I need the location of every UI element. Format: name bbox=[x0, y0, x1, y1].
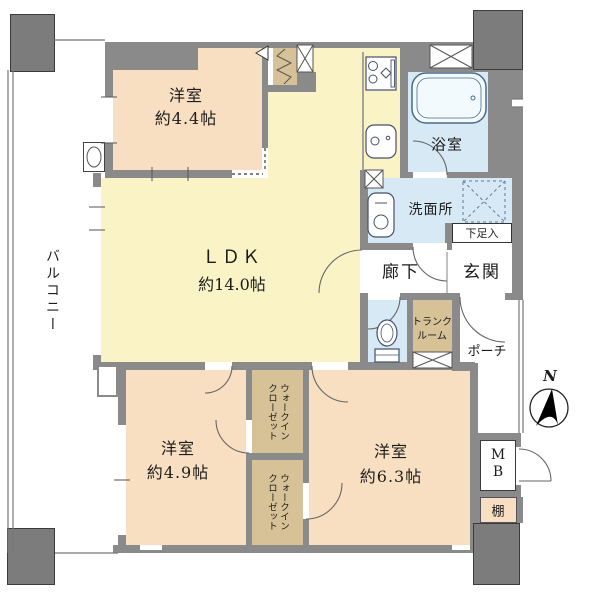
label-shelf: 棚 bbox=[491, 501, 504, 520]
toilet-icon bbox=[375, 320, 399, 362]
window-ticks bbox=[89, 97, 188, 480]
label-ldk: ＬＤＫ約14.0帖 bbox=[198, 244, 266, 298]
balcony-sink-bowl bbox=[87, 147, 101, 167]
label-compass-north: N bbox=[543, 367, 557, 385]
label-balcony: バルコニー bbox=[42, 249, 62, 334]
label-shoe-cabinet: 下足入 bbox=[466, 225, 499, 241]
bathtub-icon bbox=[412, 73, 486, 123]
compass-icon bbox=[530, 389, 568, 427]
dashed-opening bbox=[232, 148, 265, 174]
closet-zigzag bbox=[277, 49, 291, 84]
label-porch: ポーチ bbox=[467, 341, 506, 360]
kitchen-sink-icon bbox=[366, 125, 396, 158]
porch-edge-lines bbox=[512, 99, 523, 433]
plan-linework bbox=[0, 0, 600, 600]
label-wic-upper: ウォークインクローゼット bbox=[265, 384, 289, 441]
laundry-space-mark bbox=[463, 181, 505, 222]
label-trunk-room: トランクルーム bbox=[412, 316, 452, 344]
label-washroom: 洗面所 bbox=[409, 199, 454, 219]
balcony-edge-lines bbox=[8, 40, 118, 553]
floor-plan: 洋室約4.4帖 ＬＤＫ約14.0帖 浴室 洗面所 下足入 玄関 廊下 トランクル… bbox=[0, 0, 600, 600]
door-swing-triangle bbox=[256, 46, 268, 60]
label-bedroom-44: 洋室約4.4帖 bbox=[155, 84, 217, 130]
label-bedroom-63: 洋室約6.3帖 bbox=[360, 439, 422, 489]
label-hallway: 廊下 bbox=[382, 258, 420, 283]
label-meter-box: MB bbox=[491, 447, 505, 481]
label-bath: 浴室 bbox=[431, 134, 463, 155]
washbasin-icon bbox=[368, 193, 394, 237]
label-entrance: 玄関 bbox=[463, 258, 501, 283]
stove-icon bbox=[366, 57, 396, 90]
label-wic-lower: ウォークインクローゼット bbox=[265, 474, 289, 531]
label-bedroom-49: 洋室約4.9帖 bbox=[147, 437, 209, 485]
